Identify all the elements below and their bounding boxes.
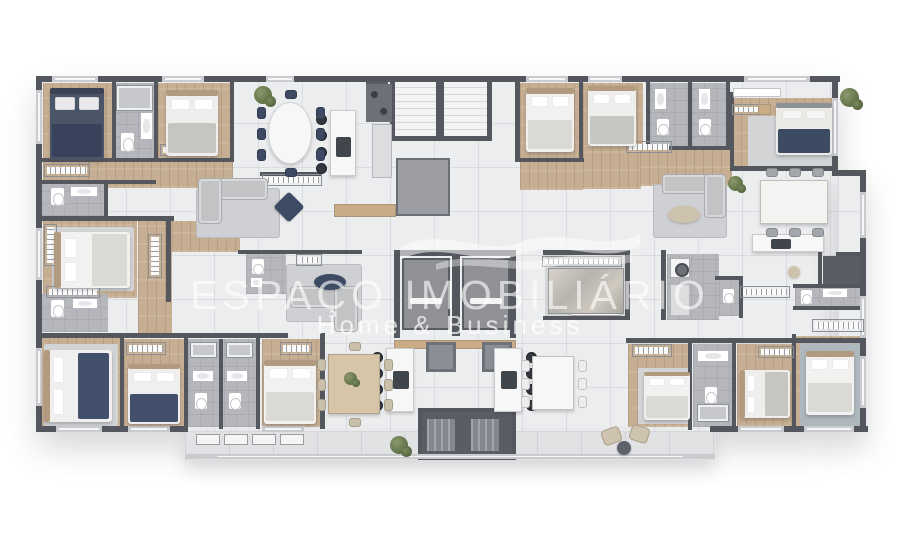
sofa-2-chaise [334, 286, 358, 332]
wardrobe [280, 342, 312, 355]
toilet [120, 132, 135, 152]
wall [625, 250, 630, 320]
wardrobe [148, 234, 162, 278]
wall [184, 337, 188, 429]
wall [515, 76, 520, 162]
toilet [50, 187, 65, 206]
service-panel-1 [426, 418, 456, 452]
plant-4 [390, 436, 408, 454]
hallway-c2-floor [520, 160, 583, 190]
sofa-3-chaise [704, 174, 726, 218]
dining-table-4 [760, 180, 828, 224]
window [36, 348, 42, 406]
toilet [656, 118, 670, 136]
wall [512, 408, 516, 460]
wall [166, 216, 171, 302]
toilet [800, 289, 813, 305]
bed-3 [54, 232, 130, 288]
elevator-divider [452, 252, 460, 336]
wall [543, 316, 629, 320]
shower [697, 404, 729, 422]
wall [230, 80, 234, 160]
planter [252, 434, 276, 445]
wall [120, 337, 124, 429]
coffee-table-2 [668, 206, 700, 223]
kitchen-wood-counter [334, 204, 396, 217]
wall [543, 250, 629, 255]
bed-9 [776, 103, 832, 155]
wardrobe [740, 286, 790, 298]
floor-plan-canvas: ESPAÇO IMOBILIÁRIO Home & Business [0, 0, 900, 540]
toilet [50, 299, 65, 318]
kitchen-island-3 [494, 348, 522, 412]
planter [280, 434, 304, 445]
elevator-frame-left [394, 250, 400, 338]
window [804, 426, 854, 432]
toilet [722, 288, 735, 304]
planter [196, 434, 220, 445]
window [860, 192, 866, 238]
wall [487, 76, 492, 140]
dining-table-3 [532, 356, 574, 410]
wall [418, 408, 422, 460]
elevator-2 [462, 258, 510, 330]
vanity [654, 88, 667, 110]
elevator-frame-right [510, 250, 516, 338]
hallway-c-floor [583, 147, 641, 189]
bed-12 [806, 351, 854, 415]
wall [646, 80, 650, 148]
service-panel-2 [470, 418, 500, 452]
toilet [251, 258, 265, 275]
window [36, 228, 42, 280]
toilet [194, 392, 208, 410]
toilet [228, 392, 242, 410]
wardrobe [812, 319, 864, 332]
wall [661, 250, 666, 320]
window [744, 76, 810, 82]
hall-cabinet-1 [426, 342, 456, 372]
toilet [704, 386, 718, 404]
floor-plan [0, 0, 900, 540]
bed-4 [44, 350, 112, 422]
bed-7 [526, 88, 574, 152]
wall [626, 338, 866, 343]
vanity [140, 112, 153, 140]
wall [518, 158, 584, 162]
wall [793, 306, 865, 310]
vanity [226, 370, 248, 382]
kitchen-island-1 [330, 110, 356, 176]
balcony-rail [185, 454, 715, 459]
plant-3 [840, 88, 859, 107]
wardrobe [296, 254, 322, 266]
wall [836, 252, 866, 256]
decor-tray [788, 266, 800, 278]
wardrobe [126, 342, 166, 355]
elevator-machine-room [396, 158, 450, 216]
vanity [697, 350, 729, 362]
plant-2 [728, 176, 743, 191]
balcony-table [617, 441, 631, 455]
wall [36, 333, 288, 338]
wall [154, 80, 158, 160]
window [262, 426, 304, 432]
window [162, 76, 204, 82]
washer [670, 258, 690, 278]
window [832, 98, 838, 156]
window [526, 76, 568, 82]
wall [38, 180, 156, 184]
vanity [822, 288, 848, 298]
window [52, 76, 98, 82]
wall [36, 216, 174, 221]
wall [579, 80, 583, 160]
window [738, 426, 784, 432]
tv-feature-wall [548, 268, 624, 314]
nightstand [758, 104, 771, 115]
kitchen-counter [372, 124, 392, 178]
window [860, 356, 866, 408]
stair-rail [436, 82, 444, 136]
bed-8 [588, 86, 636, 146]
wardrobe [542, 256, 622, 267]
wall [739, 278, 743, 318]
wall [732, 342, 736, 430]
shower [116, 85, 153, 111]
utility-counter [670, 284, 690, 316]
window [56, 426, 102, 432]
shower [226, 342, 253, 358]
coffee-table-1 [314, 274, 346, 290]
stove [366, 84, 392, 122]
wall [715, 276, 743, 280]
toilet [698, 118, 712, 136]
window [128, 426, 170, 432]
wall [256, 337, 260, 429]
wall [219, 339, 223, 429]
vanity [72, 298, 98, 309]
plant-1 [254, 86, 272, 104]
vanity [70, 186, 98, 197]
vanity [192, 370, 214, 382]
window [266, 76, 294, 82]
window [36, 90, 42, 144]
elevator-1 [402, 258, 450, 330]
wardrobe [758, 346, 794, 358]
wall [688, 80, 692, 148]
sofa-1-chaise [198, 178, 222, 224]
wall [390, 136, 492, 141]
bed-2 [166, 90, 218, 156]
wall [818, 252, 822, 288]
bed-11 [740, 370, 790, 418]
plant-5 [344, 372, 357, 385]
wall [104, 182, 108, 216]
bed-10 [644, 372, 690, 420]
wardrobe [632, 344, 672, 357]
planter [224, 434, 248, 445]
window [588, 76, 622, 82]
shelf [733, 88, 781, 97]
vanity [698, 88, 711, 110]
dining-table-1 [268, 102, 312, 164]
bed-6 [264, 360, 316, 424]
vanity [250, 277, 263, 288]
bed-5 [128, 364, 180, 424]
wardrobe [44, 164, 90, 177]
shower [190, 342, 217, 358]
bed-1 [50, 88, 104, 160]
